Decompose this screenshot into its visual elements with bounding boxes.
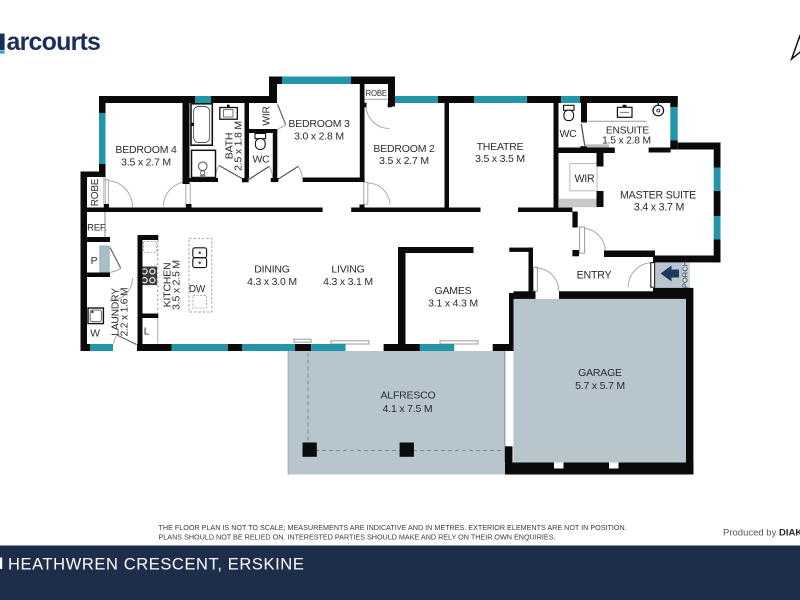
svg-text:THEATRE: THEATRE: [477, 141, 524, 153]
svg-text:BEDROOM 2: BEDROOM 2: [373, 143, 435, 155]
svg-text:ALFRESCO: ALFRESCO: [381, 390, 436, 402]
svg-text:P: P: [91, 256, 98, 267]
svg-text:DW: DW: [189, 284, 206, 295]
svg-text:2.5 x 1.8 M: 2.5 x 1.8 M: [233, 121, 245, 171]
svg-text:3.5 x 2.7 M: 3.5 x 2.7 M: [379, 155, 429, 167]
svg-text:4.3 x 3.1 M: 4.3 x 3.1 M: [323, 276, 373, 288]
svg-text:3.1 x 4.3 M: 3.1 x 4.3 M: [428, 298, 478, 310]
svg-text:LIVING: LIVING: [331, 264, 364, 276]
svg-text:5.7 x 5.7 M: 5.7 x 5.7 M: [575, 380, 625, 392]
svg-text:ROBE: ROBE: [90, 178, 101, 206]
svg-text:DINING: DINING: [254, 264, 290, 276]
svg-text:3.5 x 3.5 M: 3.5 x 3.5 M: [475, 153, 525, 165]
svg-text:L: L: [144, 327, 150, 338]
svg-text:PLANS SHOULD NOT BE RELIED ON.: PLANS SHOULD NOT BE RELIED ON. INTERESTE…: [159, 532, 556, 541]
svg-text:REF.: REF.: [87, 223, 107, 234]
svg-text:Produced by DIAKRIT: Produced by DIAKRIT: [723, 528, 800, 539]
svg-text:3.0 x 2.8 M: 3.0 x 2.8 M: [294, 131, 344, 143]
svg-text:3.5 x 2.7 M: 3.5 x 2.7 M: [121, 157, 171, 169]
svg-text:WIR: WIR: [575, 173, 596, 185]
svg-text:1.5 x 2.8 M: 1.5 x 2.8 M: [602, 136, 651, 147]
svg-text:PORCH: PORCH: [680, 261, 689, 288]
svg-text:GAMES: GAMES: [435, 285, 472, 297]
svg-text:2.2 x 1.6 M: 2.2 x 1.6 M: [120, 288, 131, 337]
svg-text:4.1 x 7.5 M: 4.1 x 7.5 M: [383, 403, 433, 415]
svg-text:arcourts: arcourts: [7, 28, 101, 56]
svg-text:BEDROOM 4: BEDROOM 4: [115, 144, 177, 156]
svg-text:3.5 x 2.5 M: 3.5 x 2.5 M: [171, 260, 183, 310]
svg-text:HEATHWREN CRESCENT, ERSKINE: HEATHWREN CRESCENT, ERSKINE: [8, 556, 304, 574]
svg-text:WC: WC: [252, 154, 270, 166]
svg-text:4.3 x 3.0 M: 4.3 x 3.0 M: [247, 276, 297, 288]
svg-text:ENTRY: ENTRY: [577, 270, 612, 282]
svg-text:THE FLOOR PLAN IS NOT TO SCALE: THE FLOOR PLAN IS NOT TO SCALE; MEASUREM…: [159, 523, 627, 532]
svg-text:W: W: [90, 329, 100, 340]
svg-text:3.4 x 3.7 M: 3.4 x 3.7 M: [634, 202, 684, 214]
svg-text:WC: WC: [559, 128, 577, 140]
svg-text:GARAGE: GARAGE: [578, 367, 622, 379]
svg-text:BEDROOM 3: BEDROOM 3: [288, 118, 350, 130]
svg-text:WIR: WIR: [262, 106, 273, 125]
svg-text:ROBE: ROBE: [366, 89, 387, 98]
svg-text:MASTER SUITE: MASTER SUITE: [620, 190, 696, 202]
